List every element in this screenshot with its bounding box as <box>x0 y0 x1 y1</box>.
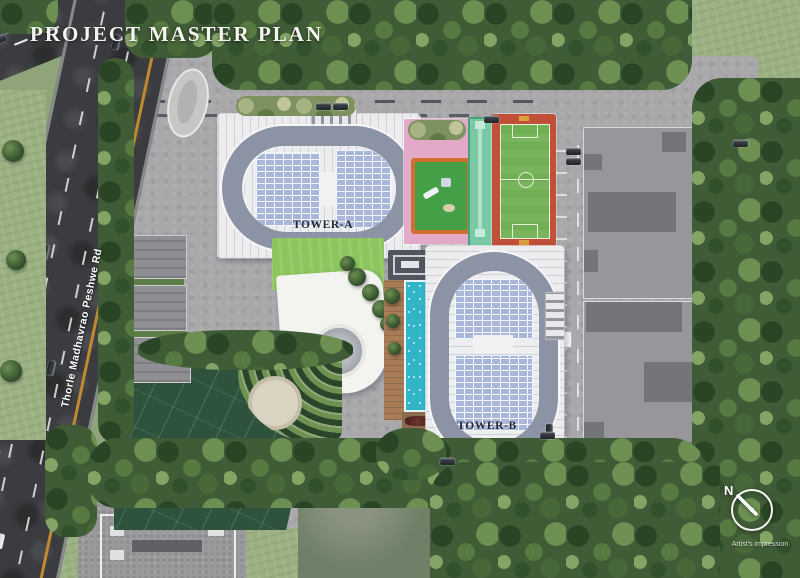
car <box>566 158 581 165</box>
car <box>0 533 5 549</box>
master-plan-render: TOWER-A <box>0 0 800 578</box>
play-area-trees <box>408 120 466 140</box>
car <box>484 116 499 123</box>
sports-field <box>500 124 550 239</box>
solar-panels <box>455 279 533 339</box>
compass-icon: N <box>708 466 792 550</box>
tree-canopy <box>430 462 720 578</box>
planting-strip <box>128 279 184 285</box>
car <box>0 448 1 464</box>
car <box>566 148 581 155</box>
car <box>333 103 348 110</box>
goal <box>519 116 529 121</box>
car <box>540 432 555 439</box>
north-label: N <box>724 483 733 498</box>
page-title: PROJECT MASTER PLAN <box>30 22 323 47</box>
solar-panels <box>336 150 392 228</box>
disclaimer: Artist's impression <box>714 541 800 548</box>
tower-b-roof-inner <box>449 271 539 443</box>
car <box>440 458 455 465</box>
playground <box>411 158 471 234</box>
tower-b-entrance-canopy <box>545 292 565 340</box>
goal <box>519 240 529 245</box>
solar-panels <box>256 152 320 226</box>
car <box>46 360 56 376</box>
car <box>733 140 748 147</box>
carport-block <box>126 236 186 278</box>
car <box>0 34 7 46</box>
tower-a-label: TOWER-A <box>253 219 393 231</box>
tree-canopy <box>138 330 353 370</box>
lane-marking <box>577 135 579 465</box>
sports-court <box>492 114 556 247</box>
tree-canopy <box>376 428 446 480</box>
tower-b-label: TOWER-B <box>417 420 557 432</box>
car <box>316 103 331 110</box>
car <box>564 332 571 347</box>
